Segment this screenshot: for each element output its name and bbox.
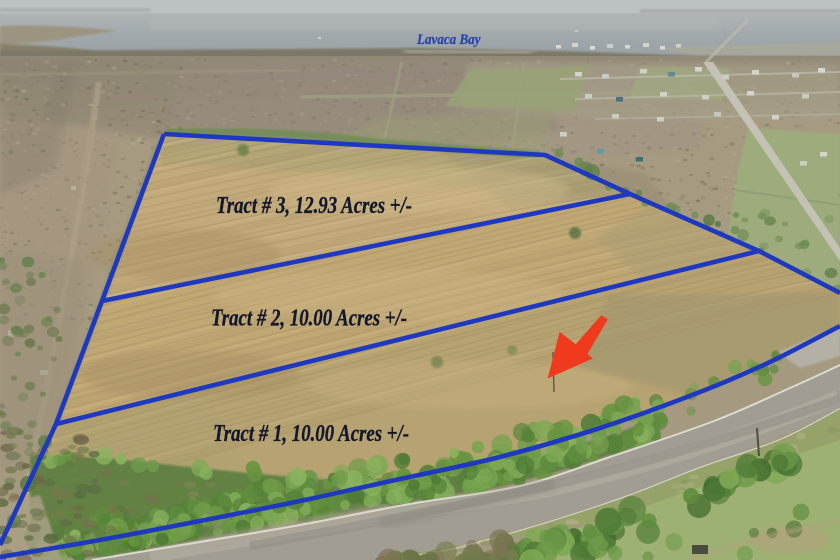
- svg-text:Lavaca Bay: Lavaca Bay: [416, 31, 481, 48]
- svg-text:Tract # 3, 12.93 Acres +/-: Tract # 3, 12.93 Acres +/-: [216, 193, 412, 219]
- svg-text:Tract # 1, 10.00 Acres +/-: Tract # 1, 10.00 Acres +/-: [213, 421, 409, 447]
- svg-text:Tract # 2, 10.00 Acres +/-: Tract # 2, 10.00 Acres +/-: [211, 306, 407, 332]
